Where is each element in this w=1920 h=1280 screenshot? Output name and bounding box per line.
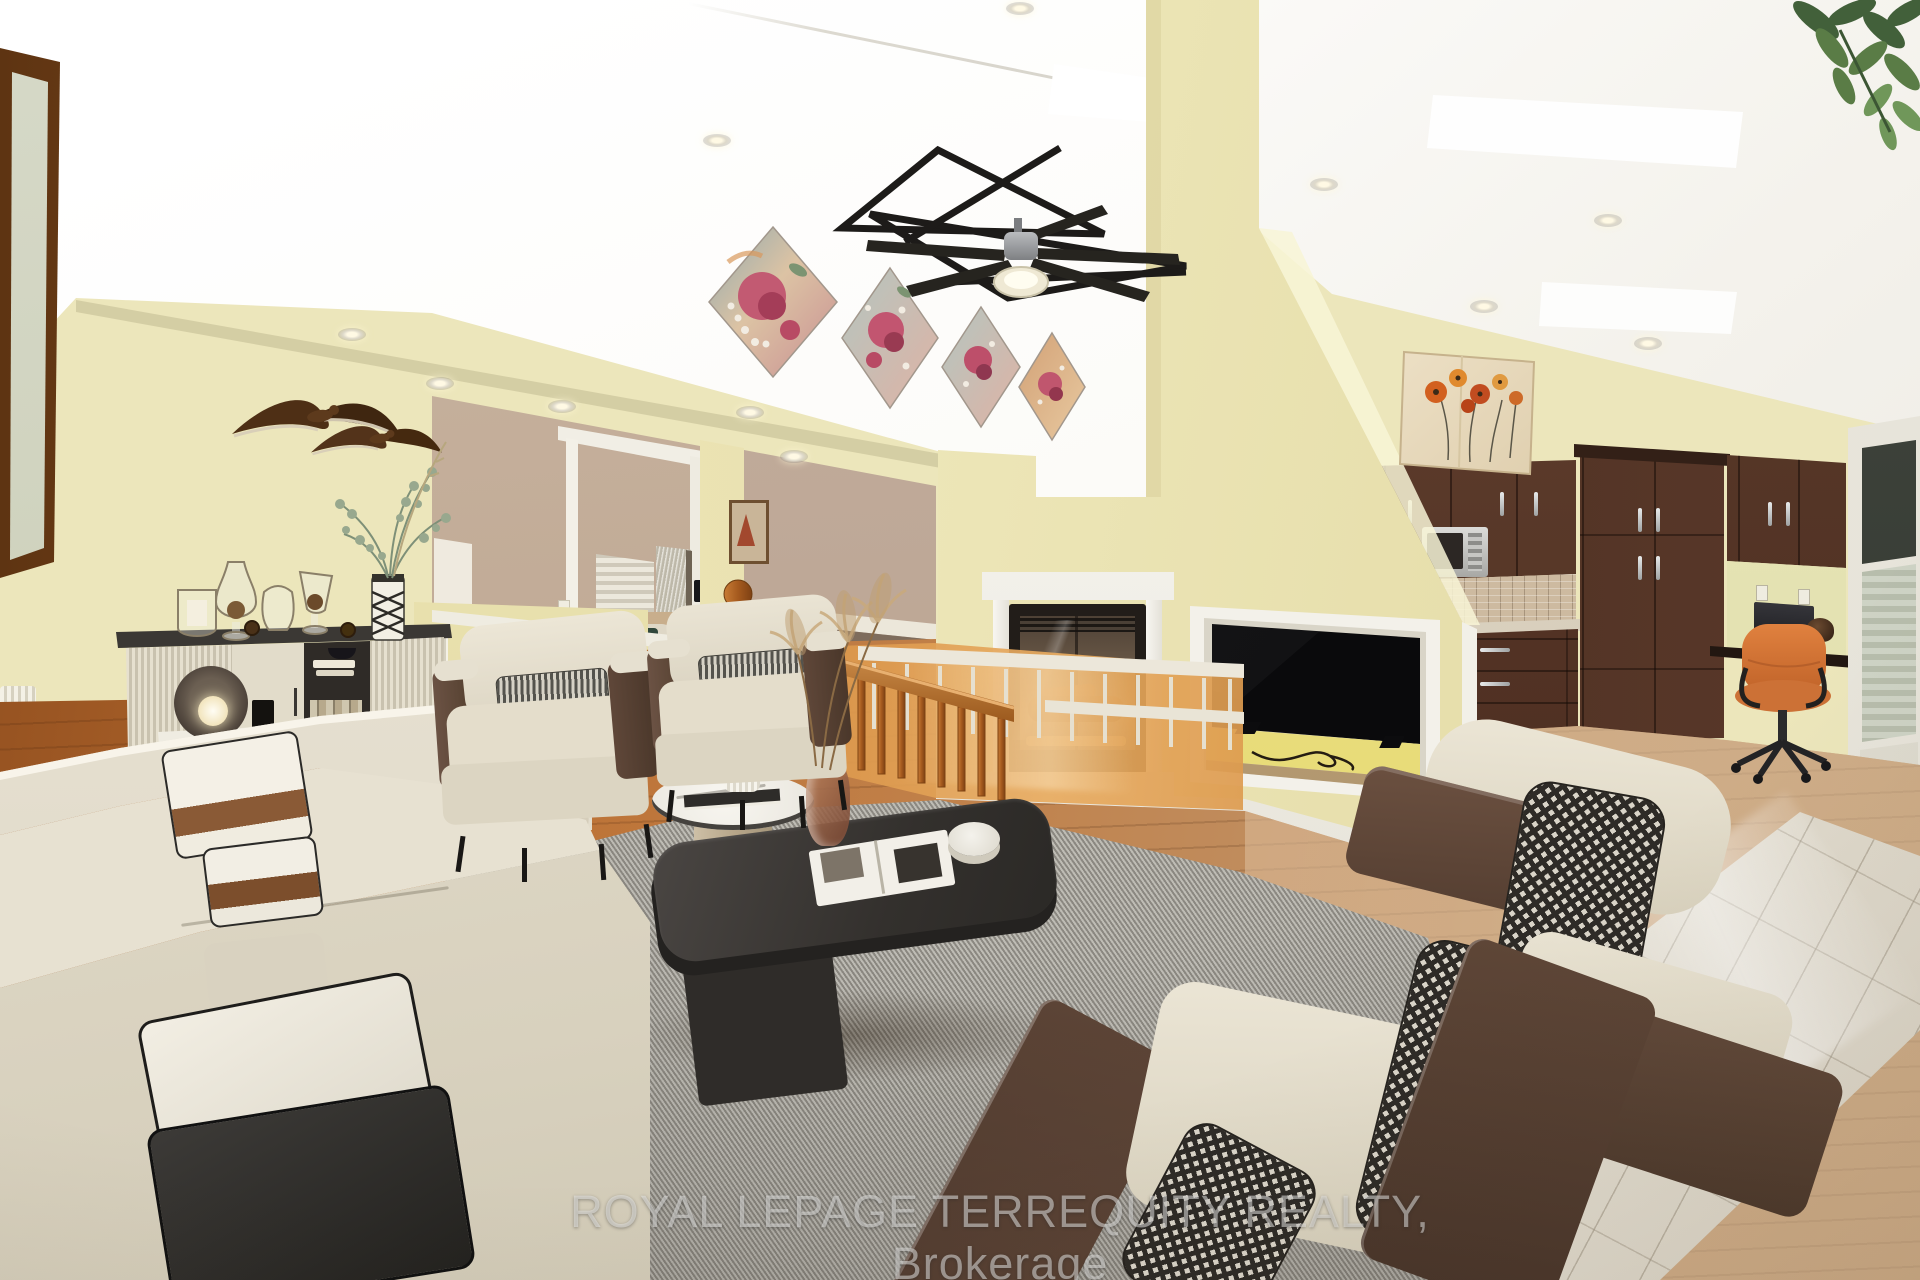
living-room-photo: ROYAL LEPAGE TERREQUITY REALTY, Brokerag… <box>0 0 1920 1280</box>
photo-vignette <box>0 0 1920 1280</box>
